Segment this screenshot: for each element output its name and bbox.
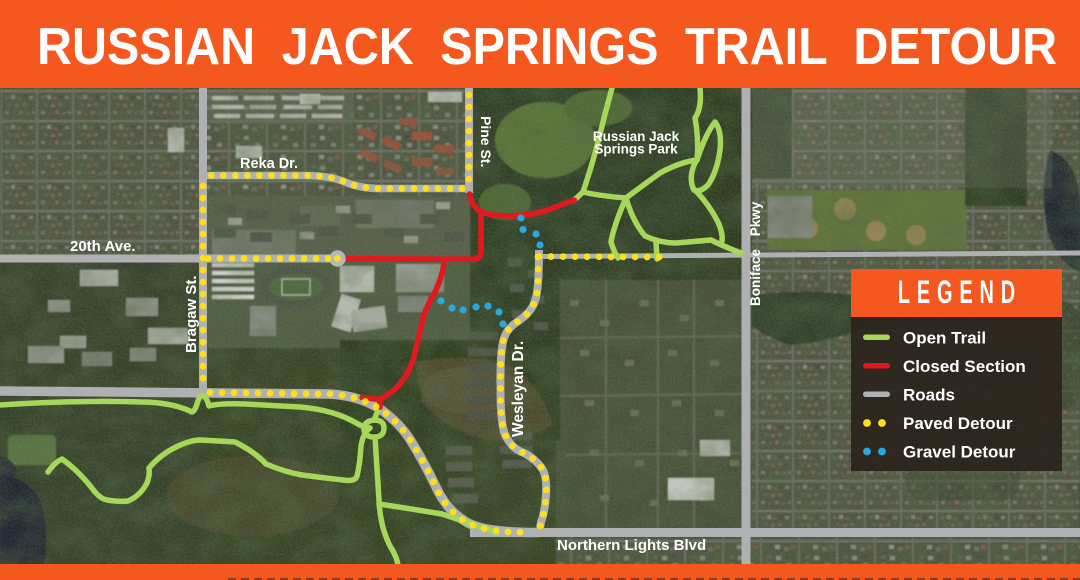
svg-text:20th Ave.: 20th Ave. — [70, 238, 136, 255]
svg-text:Pine St.: Pine St. — [478, 116, 494, 167]
svg-text:Boniface Pkwy: Boniface Pkwy — [748, 201, 763, 306]
svg-text:Wesleyan Dr.: Wesleyan Dr. — [510, 341, 527, 437]
svg-text:Springs Park: Springs Park — [594, 142, 678, 157]
svg-text:Bragaw St.: Bragaw St. — [183, 275, 200, 353]
svg-text:Northern Lights Blvd: Northern Lights Blvd — [557, 537, 706, 554]
svg-text:Reka Dr.: Reka Dr. — [240, 156, 298, 172]
